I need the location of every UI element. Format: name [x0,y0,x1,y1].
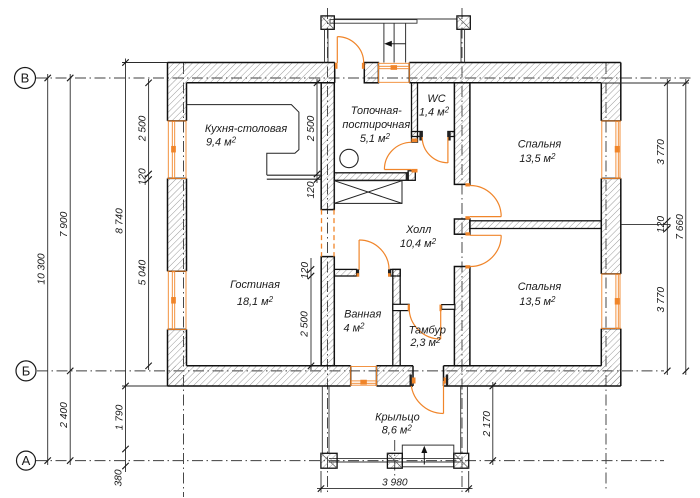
svg-text:10,4 м2: 10,4 м2 [400,237,437,250]
svg-text:Б: Б [22,364,31,379]
svg-text:2 500: 2 500 [306,115,317,142]
svg-text:А: А [22,453,31,468]
svg-text:2 170: 2 170 [482,411,493,438]
svg-text:Спальня: Спальня [518,138,562,150]
svg-text:2 400: 2 400 [59,402,70,429]
svg-text:В: В [21,71,30,86]
svg-text:120: 120 [656,216,667,233]
svg-text:2 500: 2 500 [138,115,149,142]
svg-text:120: 120 [306,181,317,198]
svg-text:7 900: 7 900 [59,211,70,237]
svg-text:380: 380 [114,469,125,486]
svg-text:8 740: 8 740 [115,208,126,234]
svg-text:13,5 м2: 13,5 м2 [519,295,556,308]
svg-text:13,5 м2: 13,5 м2 [519,152,556,165]
svg-text:Топочная-: Топочная- [351,105,402,117]
svg-text:Кухня-столовая: Кухня-столовая [205,123,288,135]
svg-text:1 790: 1 790 [115,404,126,430]
svg-text:5 040: 5 040 [138,260,149,286]
svg-text:120: 120 [138,168,149,185]
svg-text:2 500: 2 500 [299,311,310,338]
svg-text:18,1 м2: 18,1 м2 [237,295,274,308]
svg-text:WC: WC [427,93,445,105]
svg-text:3 980: 3 980 [382,478,408,489]
svg-text:10 300: 10 300 [37,253,48,284]
svg-text:Тамбур: Тамбур [409,325,446,337]
svg-text:Крыльцо: Крыльцо [375,412,420,424]
svg-text:Ванная: Ванная [344,308,381,320]
svg-text:Гостиная: Гостиная [230,279,280,291]
svg-text:постирочная: постирочная [342,119,410,131]
svg-text:Холл: Холл [405,224,431,236]
svg-text:3 770: 3 770 [656,287,667,313]
svg-text:Спальня: Спальня [518,281,562,293]
svg-text:3 770: 3 770 [656,139,667,165]
svg-text:7 660: 7 660 [675,214,686,240]
svg-text:120: 120 [300,262,311,279]
